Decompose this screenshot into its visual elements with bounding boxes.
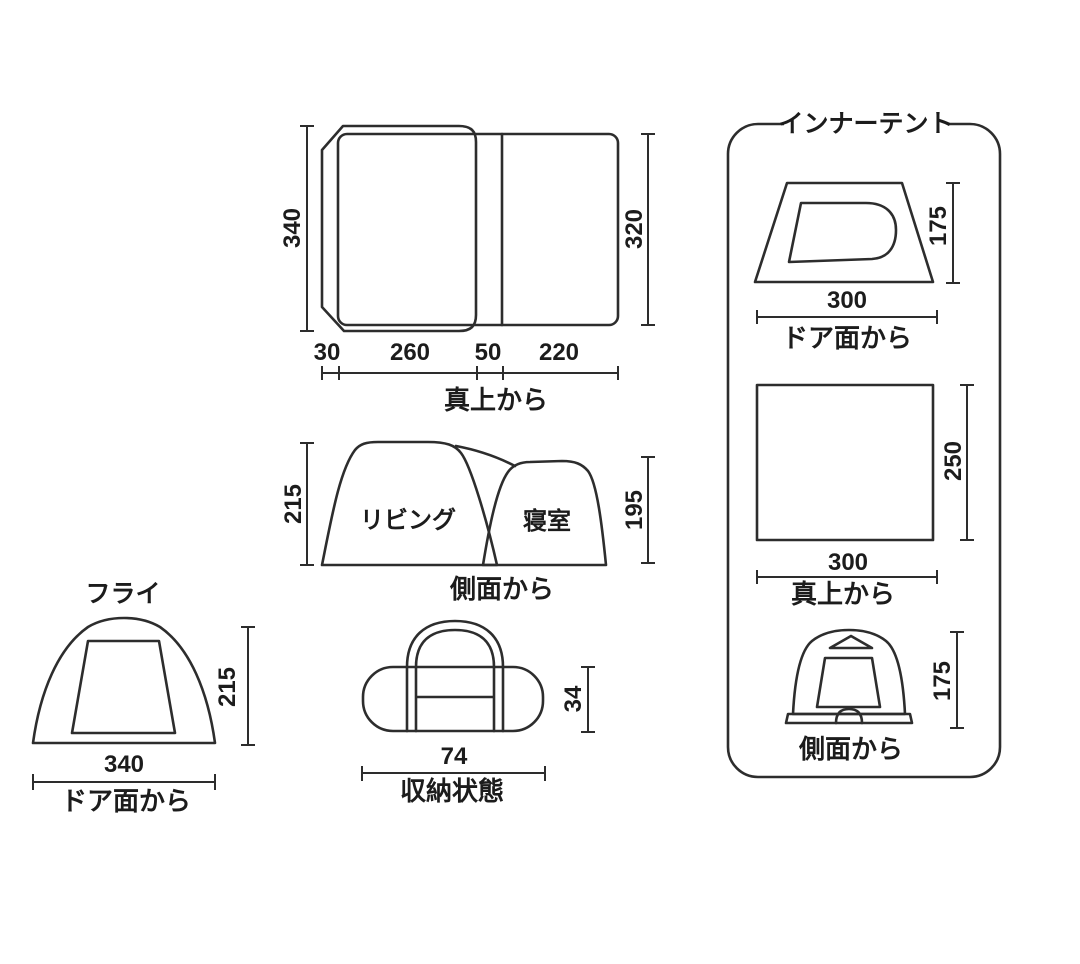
dim-label-215: 215 bbox=[280, 484, 307, 524]
fly-outline-top bbox=[322, 126, 476, 331]
dim-label-300-door: 300 bbox=[827, 287, 867, 314]
fly-door-panel bbox=[72, 641, 175, 733]
bedroom-label: 寝室 bbox=[523, 507, 571, 535]
dim-label-260: 260 bbox=[390, 339, 430, 366]
inner-tent-panel: インナーテント 175 300 ドア面から 250 300 真上から bbox=[728, 110, 1000, 777]
inner-door-caption: ドア面から bbox=[782, 323, 912, 353]
living-room-label: リビング bbox=[360, 507, 456, 534]
inner-side-threshold-arc bbox=[836, 709, 862, 723]
inner-side-caption: 側面から bbox=[798, 734, 903, 764]
inner-side-base bbox=[786, 714, 912, 723]
dim-label-30: 30 bbox=[314, 339, 341, 366]
diagram-svg: 340 320 30 260 50 220 真上から 215 195 リビング … bbox=[0, 0, 1080, 964]
dim-line-widths-bottom bbox=[322, 366, 618, 380]
side-view-caption: 側面から bbox=[449, 574, 554, 604]
dim-label-220: 220 bbox=[539, 339, 579, 366]
inner-tent-door-view: 175 300 ドア面から bbox=[755, 183, 960, 353]
inner-door-opening bbox=[789, 203, 896, 262]
inner-side-window bbox=[817, 658, 880, 707]
inner-door-outline bbox=[755, 183, 933, 282]
ridge-connector-line bbox=[456, 446, 515, 466]
dim-label-340: 340 bbox=[279, 208, 306, 248]
dim-label-175-side: 175 bbox=[929, 661, 956, 701]
dim-label-340-fly: 340 bbox=[104, 751, 144, 778]
dim-line-215-fly bbox=[241, 627, 255, 745]
inner-tent-top-view: 250 300 真上から bbox=[757, 385, 974, 609]
dim-label-50: 50 bbox=[475, 339, 502, 366]
storage-caption: 収納状態 bbox=[400, 776, 504, 806]
inner-tent-title: インナーテント bbox=[778, 110, 953, 138]
dim-label-175-door: 175 bbox=[925, 206, 952, 246]
dim-label-195: 195 bbox=[621, 490, 648, 530]
storage-bag-view: 34 74 収納状態 bbox=[362, 621, 595, 806]
dim-label-300-top: 300 bbox=[828, 549, 868, 576]
main-tent-side-view: 215 195 リビング 寝室 側面から bbox=[280, 442, 655, 604]
inner-top-outline bbox=[757, 385, 933, 540]
inner-side-outline bbox=[793, 630, 905, 714]
dim-label-250: 250 bbox=[940, 441, 967, 481]
top-view-caption: 真上から bbox=[444, 385, 548, 415]
dim-label-215-fly: 215 bbox=[214, 667, 241, 707]
inner-top-caption: 真上から bbox=[791, 579, 895, 609]
dim-label-320: 320 bbox=[621, 209, 648, 249]
dim-label-34: 34 bbox=[560, 685, 587, 712]
dim-label-74: 74 bbox=[441, 743, 468, 770]
bag-body bbox=[363, 667, 543, 731]
tent-spec-diagram: 340 320 30 260 50 220 真上から 215 195 リビング … bbox=[0, 0, 1080, 964]
fly-dome-outline bbox=[33, 618, 215, 743]
inner-side-vent bbox=[830, 636, 872, 648]
bag-handle-inner bbox=[416, 630, 494, 667]
inner-tent-side-view: 175 側面から bbox=[786, 630, 964, 764]
living-dome-outline bbox=[322, 442, 497, 565]
fly-door-view: フライ 215 340 ドア面から bbox=[33, 580, 255, 816]
fly-title: フライ bbox=[85, 580, 160, 608]
fly-caption: ドア面から bbox=[61, 786, 191, 816]
main-tent-top-view: 340 320 30 260 50 220 真上から bbox=[279, 126, 655, 415]
